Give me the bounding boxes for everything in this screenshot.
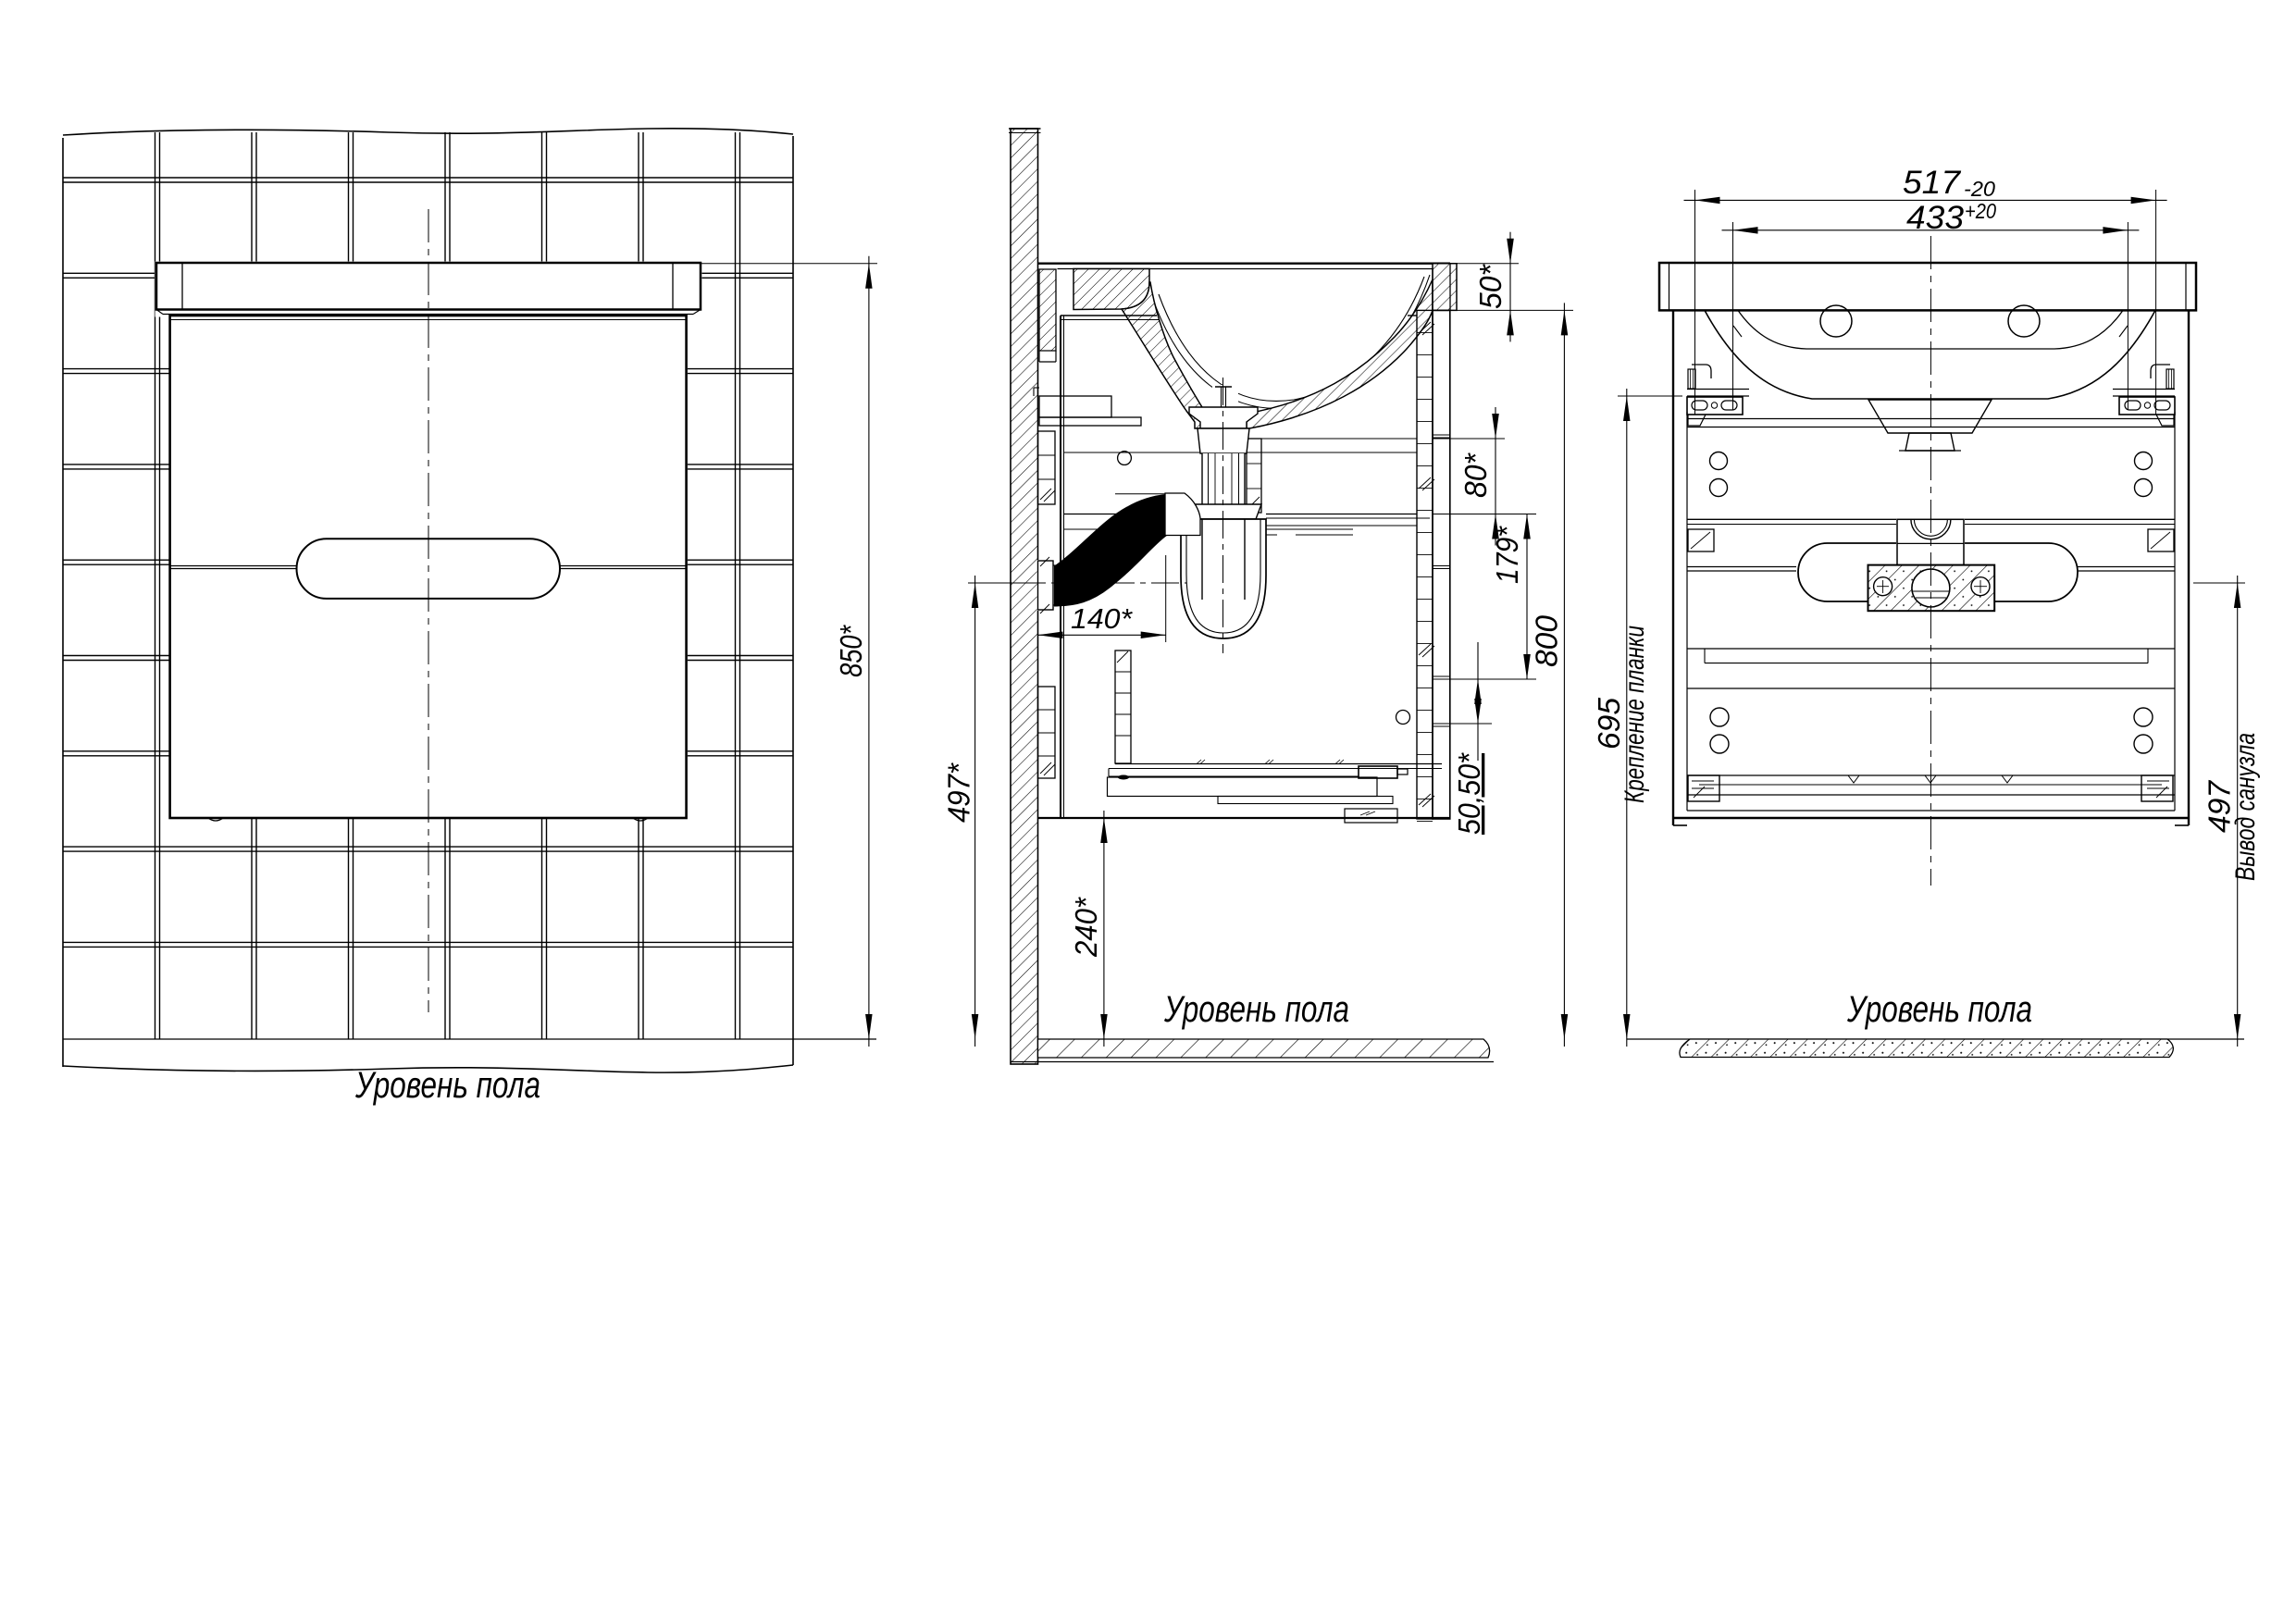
svg-text:850*: 850*	[834, 625, 868, 677]
svg-text:-20: -20	[1964, 177, 1995, 201]
svg-text:Уровень пола: Уровень пола	[354, 1065, 540, 1106]
svg-text:Уровень пола: Уровень пола	[1163, 989, 1349, 1030]
svg-text:800: 800	[1529, 614, 1563, 667]
svg-text:50,50*: 50,50*	[1452, 752, 1486, 835]
svg-text:50*: 50*	[1473, 264, 1508, 309]
svg-text:+20: +20	[1965, 199, 1996, 223]
svg-text:80*: 80*	[1458, 452, 1493, 498]
svg-text:Уровень пола: Уровень пола	[1846, 989, 2032, 1030]
svg-text:Крепление планки: Крепление планки	[1620, 626, 1650, 803]
svg-text:497*: 497*	[942, 762, 976, 823]
svg-text:517: 517	[1903, 165, 1962, 201]
svg-text:433: 433	[1906, 200, 1965, 236]
svg-text:179*: 179*	[1490, 526, 1524, 584]
svg-text:140*: 140*	[1071, 602, 1133, 635]
svg-text:Вывод санузла: Вывод санузла	[2230, 733, 2261, 881]
svg-text:240*: 240*	[1069, 897, 1103, 958]
